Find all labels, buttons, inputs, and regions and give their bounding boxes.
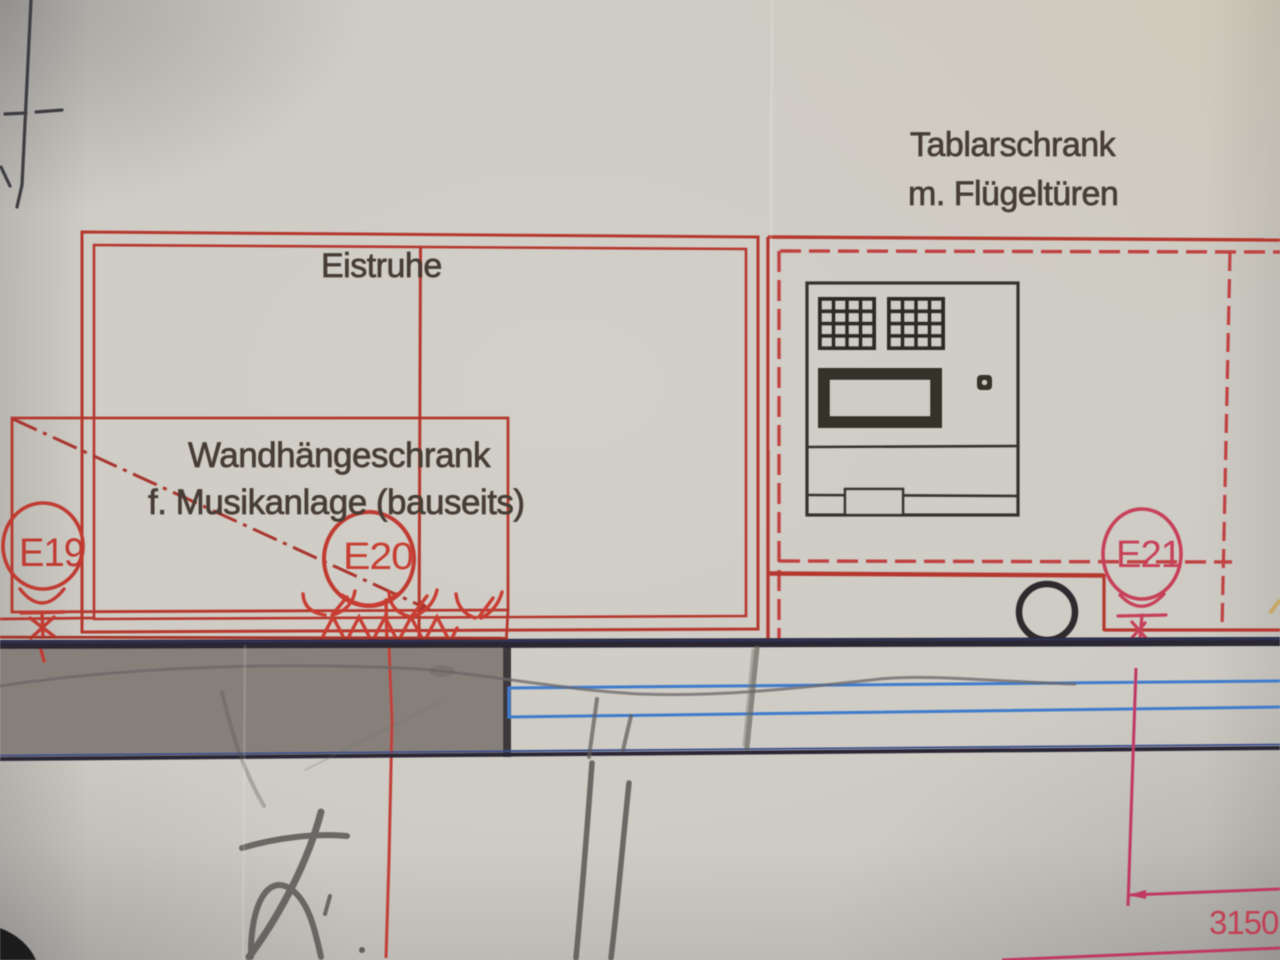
svg-text:E19: E19: [19, 531, 84, 575]
svg-text:f. Musikanlage (bauseits): f. Musikanlage (bauseits): [148, 483, 525, 522]
svg-text:E21: E21: [1116, 534, 1181, 576]
svg-text:E20: E20: [343, 536, 413, 578]
svg-text:Tablarschrank: Tablarschrank: [910, 126, 1117, 164]
svg-text:Wandhängeschrank: Wandhängeschrank: [188, 436, 491, 475]
svg-text:m. Flügeltüren: m. Flügeltüren: [908, 175, 1118, 213]
svg-text:3150: 3150: [1209, 904, 1279, 941]
svg-text:Eistruhe: Eistruhe: [321, 247, 442, 285]
